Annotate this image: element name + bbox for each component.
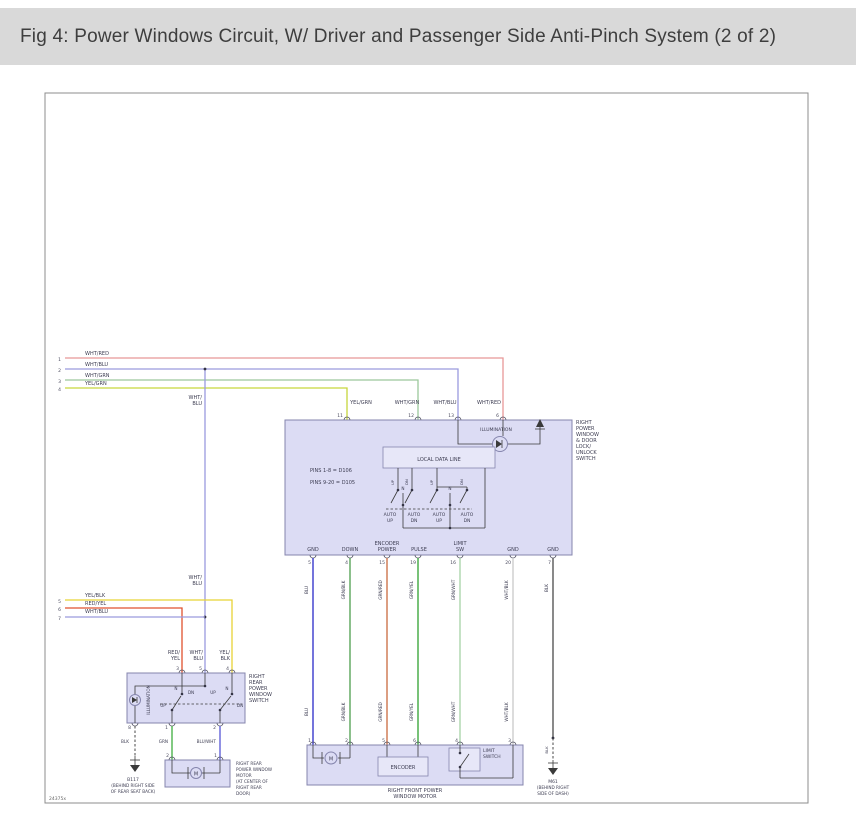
encoder-label: ENCODER [391,765,416,771]
pin-number: 3 [176,666,179,672]
pin-number: 19 [410,560,416,566]
pin-number: 2 [345,738,348,744]
pin-number: 2 [166,753,169,759]
tap-wire-label: BLU [192,401,202,407]
auto-label: AUTO [461,512,474,518]
limit-switch-label: SWITCH [483,754,501,760]
pin-number: 4 [345,560,348,566]
wire-color-label: BLK [544,584,549,592]
pin-number: 5 [382,738,385,744]
feed-pin-number: 7 [58,616,61,622]
ground-label: (BEHIND RIGHT [537,785,570,790]
auto-label: DN [464,518,471,524]
wire-color-label: GRN/RED [378,580,383,599]
feed-wire-label: WHT/BLU [85,362,108,368]
pin-number: 12 [408,413,414,419]
pin-number: 20 [505,560,511,566]
pins-note: PINS 1-8 = D106 [310,468,352,474]
neutral-label: N [448,486,451,491]
main-switch-box: 11 12 13 6 YEL/GRN WHT/GRN WHT/BLU WHT/R… [285,400,599,566]
feed-wire-label: WHT/RED [85,351,109,357]
name-line: SWITCH [249,698,269,704]
wire-color-label: GRN/YEL [409,702,414,721]
pin-number: 6 [413,738,416,744]
pin-func: SW [456,547,464,553]
feed-wire-label: YEL/GRN [84,381,107,387]
pin-number: 15 [379,560,385,566]
junction-dot [204,368,207,371]
neutral-label: N [174,686,177,691]
wire-color-label: WHT/BLK [504,580,509,599]
wire-color-label: YEL/GRN [349,400,372,406]
position-label: UP [210,690,216,695]
motor-letter: M [194,772,198,778]
pin-number: 11 [337,413,343,419]
tip-label: DN [459,479,464,485]
wire-color-label: WHT/GRN [395,400,420,406]
wire-color-label: WHT/BLU [433,400,456,406]
local-data-line-label: LOCAL DATA LINE [417,457,460,463]
position-label: UP [160,703,166,708]
front-motor-name: WINDOW MOTOR [393,794,437,800]
pin-number: 4 [226,666,229,672]
pin-number: 5 [199,666,202,672]
limit-switch-label: LIMIT [483,748,495,754]
name-line: RIGHT REAR [236,761,262,766]
wire-color-label: BLU/WHT [197,739,217,744]
pin-number: 13 [448,413,454,419]
position-label: DN [237,703,243,708]
wire-color-label: BLU [193,656,203,662]
motor-letter: M [329,757,333,763]
feed-wire-label: WHT/GRN [85,373,110,379]
pin-number: 4 [455,738,458,744]
feed-pin-number: 3 [58,379,61,385]
feed-wire-label: RED/YEL [85,601,106,607]
wire-color-label: GRN/WHT [451,701,456,722]
wire-color-label: GRN/YEL [409,580,414,599]
pin-number: 2 [213,725,216,731]
illumination-label: ILLUMINATION [146,685,151,715]
feed-pin-number: 4 [58,387,61,393]
pin-func: GND [507,547,519,553]
neutral-label: N [225,686,228,691]
wire-color-label: GRN/BLK [341,580,346,599]
feed-wire-label: WHT/BLU [85,609,108,615]
tip-label: UP [390,479,395,485]
pin-number: 1 [214,753,217,759]
name-line: POWER WINDOW [236,767,272,772]
wire-color-label: YEL [170,656,180,662]
name-line: SWITCH [576,456,596,462]
name-line: MOTOR [236,773,252,778]
pins-note: PINS 9-20 = D105 [310,480,355,486]
neutral-label: N [401,486,404,491]
pin-number: 8 [128,725,131,731]
wire-color-label: GRN/WHT [451,579,456,600]
feed-pin-number: 5 [58,599,61,605]
wire-color-label: BLU [304,586,309,594]
name-line: RIGHT REAR [236,785,262,790]
feed-wire-label: YEL/BLK [84,593,106,599]
wire-color-label: BLK [544,746,549,754]
feed-pin-number: 2 [58,368,61,374]
pin-number: 5 [308,560,311,566]
pin-number: 16 [450,560,456,566]
wire-color-label: WHT/BLK [504,702,509,721]
auto-label: AUTO [408,512,421,518]
name-line: DOOR) [236,791,251,796]
auto-label: UP [436,518,442,524]
ground-label: OF REAR SEAT BACK) [111,789,156,794]
pin-func: DOWN [342,547,359,553]
wire-color-label: WHT/RED [477,400,501,406]
rear-switch-body [127,673,245,723]
wire-color-label: GRN/RED [378,702,383,721]
ground-label: (BEHIND RIGHT SIDE [111,783,155,788]
position-label: DN [188,690,194,695]
pin-number: 3 [508,738,511,744]
wire-color-label: BLU [304,708,309,716]
auto-label: DN [411,518,418,524]
pin-number: 1 [308,738,311,744]
tip-label: UP [429,479,434,485]
limit-switch-box [449,748,480,771]
auto-label: AUTO [384,512,397,518]
wire-color-label: BLK [221,656,231,662]
name-line: (AT CENTER OF [236,779,269,784]
wire-color-label: GRN [159,739,168,744]
ground-label: SIDE OF DASH) [537,791,569,796]
pin-func: POWER [378,547,397,553]
wire-color-label: GRN/BLK [341,702,346,721]
wire-color-label: BLK [121,739,129,744]
main-switch-body [285,420,572,555]
illumination-label: ILLUMINATION [480,427,512,433]
feed-pin-number: 1 [58,357,61,363]
pin-func: PULSE [411,547,427,553]
tip-label: DN [404,479,409,485]
pin-func: GND [547,547,559,553]
pin-func: GND [307,547,319,553]
tap-wire-label: BLU [192,581,202,587]
wiring-diagram: 24375x 1 WHT/RED 2 WHT/BLU 3 WHT/GRN 4 Y… [0,0,856,817]
feed-pin-number: 6 [58,607,61,613]
pin-number: 6 [496,413,499,419]
pin-number: 1 [165,725,168,731]
drawing-ref-code: 24375x [49,796,66,802]
auto-label: AUTO [433,512,446,518]
auto-label: UP [387,518,393,524]
pin-number: 7 [548,560,551,566]
